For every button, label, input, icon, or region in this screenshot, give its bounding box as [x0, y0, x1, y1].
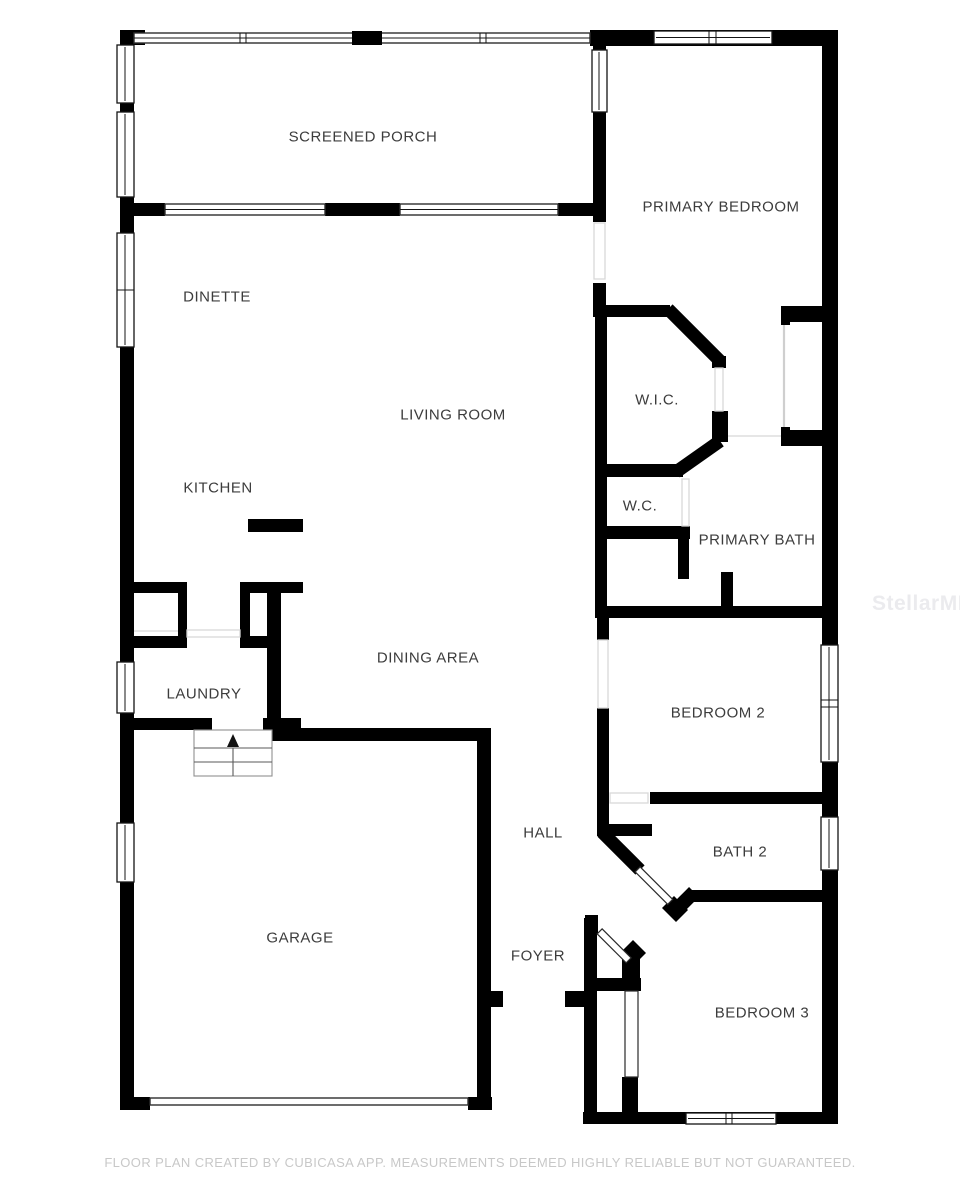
- bedroom3-closet-door: [625, 991, 638, 1077]
- porch-screen-wall: [134, 31, 590, 45]
- window-laundry: [117, 662, 134, 713]
- bedroom3-door-leaf: [597, 929, 631, 963]
- room-label-hall: HALL: [523, 825, 563, 842]
- bedroom2-hall-door: [610, 793, 648, 803]
- window-porch-1: [117, 45, 134, 103]
- floor-plan: SCREENED PORCH PRIMARY BEDROOM DINETTE L…: [0, 0, 960, 1200]
- room-label-dining-area: DINING AREA: [377, 650, 479, 667]
- room-label-dinette: DINETTE: [183, 289, 251, 306]
- room-label-bath-2: BATH 2: [713, 844, 767, 861]
- stairs-icon: [194, 730, 272, 776]
- room-label-living-room: LIVING ROOM: [400, 407, 506, 424]
- floor-plan-canvas: [0, 0, 960, 1200]
- room-label-bedroom-3: BEDROOM 3: [715, 1005, 810, 1022]
- window-dinette: [117, 233, 134, 347]
- room-label-primary-bedroom: PRIMARY BEDROOM: [643, 199, 800, 216]
- footer-disclaimer: FLOOR PLAN CREATED BY CUBICASA APP. MEAS…: [0, 1155, 960, 1170]
- room-label-laundry: LAUNDRY: [167, 686, 242, 703]
- room-label-kitchen: KITCHEN: [183, 480, 252, 497]
- room-label-wc: W.C.: [623, 498, 658, 515]
- room-label-screened-porch: SCREENED PORCH: [289, 129, 438, 146]
- wic-door: [715, 368, 723, 411]
- room-label-bedroom-2: BEDROOM 2: [671, 705, 766, 722]
- window-bedroom3: [686, 1113, 776, 1124]
- window-primary-top: [654, 31, 772, 44]
- bedroom2-side-door: [598, 640, 608, 708]
- shower-glass: [781, 316, 790, 436]
- wc-door: [682, 479, 689, 526]
- garage-door: [150, 1098, 468, 1105]
- window-porch-2: [117, 112, 134, 197]
- window-bedroom2: [821, 645, 838, 762]
- room-label-primary-bath: PRIMARY BATH: [699, 532, 816, 549]
- room-label-garage: GARAGE: [266, 930, 333, 947]
- watermark-stellar-mls: StellarMLS: [872, 592, 960, 616]
- room-label-foyer: FOYER: [511, 948, 565, 965]
- window-garage: [117, 823, 134, 882]
- bath2-door-leaf: [635, 867, 672, 904]
- room-label-wic: W.I.C.: [635, 392, 679, 409]
- laundry-door: [187, 630, 240, 637]
- window-primary-porch: [592, 50, 607, 112]
- window-bath2: [821, 817, 838, 870]
- primary-bedroom-door: [594, 223, 605, 279]
